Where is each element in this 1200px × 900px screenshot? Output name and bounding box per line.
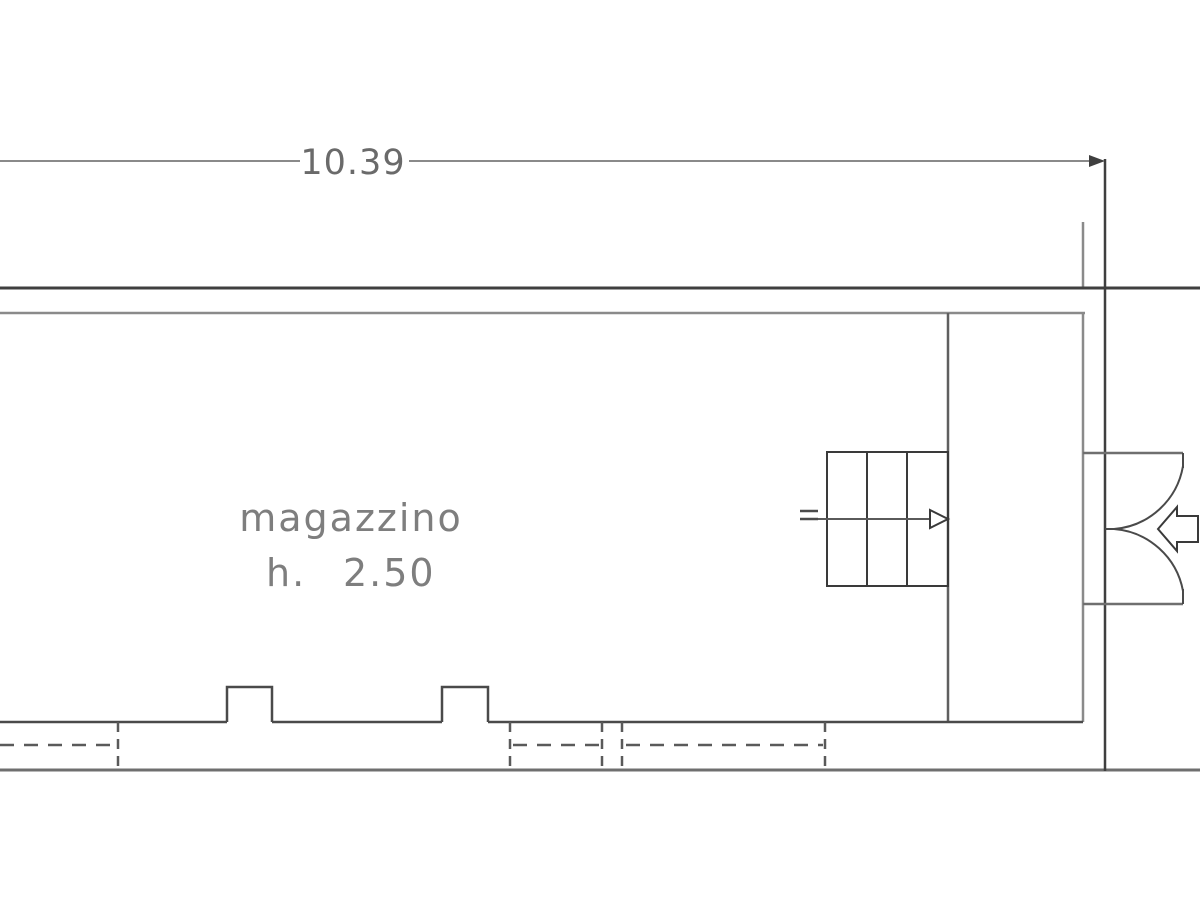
dimension-arrowhead-icon	[1089, 155, 1105, 167]
room-height-label: h.	[266, 551, 306, 595]
window-opening-2	[510, 722, 602, 770]
stair-direction-arrow-icon	[800, 510, 948, 528]
window-opening-1	[0, 722, 118, 770]
entrance-arrow-icon	[1158, 507, 1198, 551]
wall-pilaster-2	[442, 687, 488, 722]
floor-plan-drawing: 10.39	[0, 0, 1200, 900]
dimension-line	[0, 155, 1105, 288]
window-opening-3	[622, 722, 825, 770]
room-name-label: magazzino	[239, 496, 463, 540]
floor-plan-page: 10.39	[0, 0, 1200, 900]
dimension-label: 10.39	[300, 143, 405, 183]
double-swing-door-icon	[1083, 453, 1183, 604]
right-wall	[1083, 159, 1105, 771]
wall-pilaster-1	[227, 687, 272, 722]
room-height-value: 2.50	[343, 551, 436, 595]
